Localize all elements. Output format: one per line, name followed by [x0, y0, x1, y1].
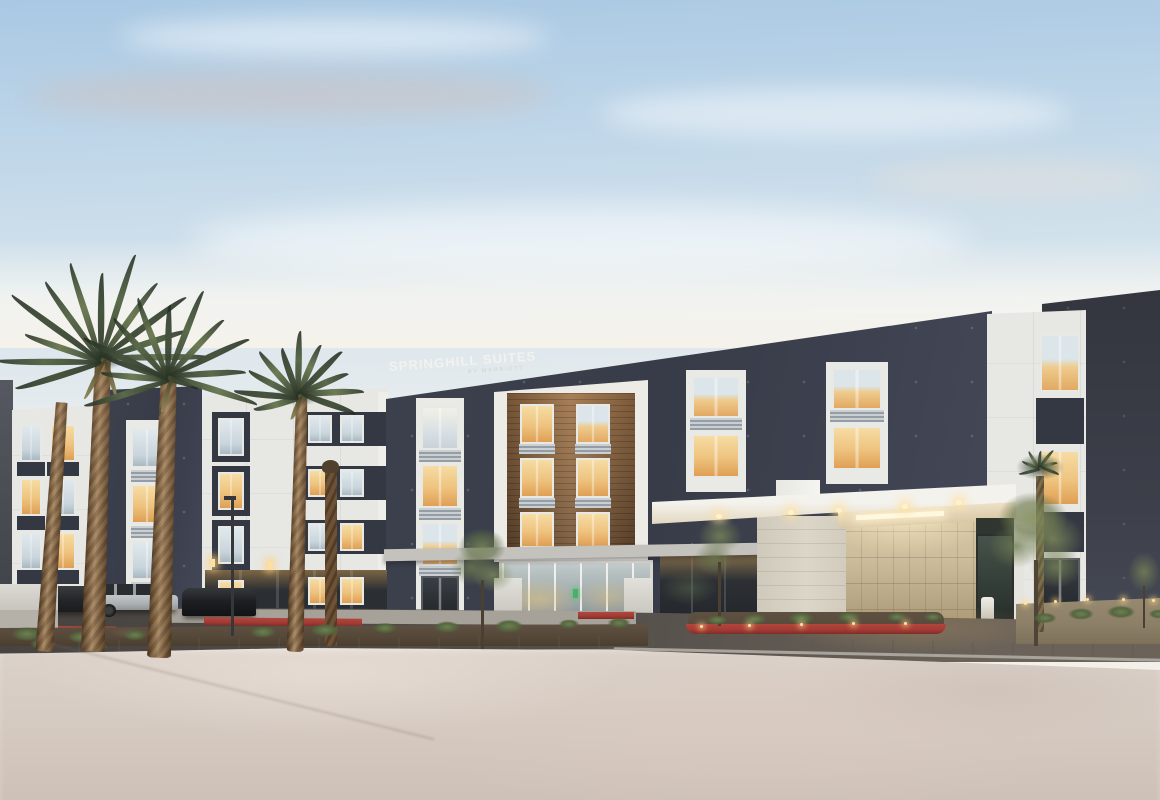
window: [340, 415, 364, 443]
window: [340, 577, 364, 605]
light-pole-head: [224, 496, 236, 500]
window: [520, 458, 554, 498]
cloud: [600, 88, 1070, 138]
parked-car: [182, 588, 256, 616]
bare-palm-top: [322, 460, 339, 473]
hotel-exterior-photo: SPRINGHILL SUITES BY MARRIOTT: [0, 0, 1160, 800]
landscape-tree: [694, 518, 748, 626]
red-curb: [204, 617, 362, 626]
shrub: [887, 612, 908, 622]
shrub: [373, 623, 396, 634]
spandrel-panel: [1036, 398, 1084, 444]
shrub: [1107, 605, 1136, 618]
exit-sign: [573, 589, 578, 598]
tree-foliage: [694, 542, 734, 576]
canopy-downlight: [788, 510, 794, 515]
shrub: [495, 619, 524, 632]
ground-light: [904, 622, 907, 625]
window: [1040, 334, 1080, 392]
spandrel-panel: [690, 418, 742, 430]
canopy-downlight: [902, 504, 908, 509]
canopy-downlight: [956, 500, 962, 505]
tree-foliage: [472, 558, 514, 592]
shrub: [311, 623, 340, 636]
ground-light: [852, 622, 855, 625]
window: [576, 512, 610, 548]
spandrel-panel: [575, 444, 611, 454]
window: [520, 512, 554, 548]
cloud: [120, 18, 550, 56]
spandrel-panel: [17, 516, 45, 530]
shrub: [707, 615, 728, 625]
window: [20, 478, 42, 516]
window: [340, 523, 364, 551]
window: [308, 415, 332, 443]
window: [421, 464, 459, 508]
ground-light: [1122, 598, 1125, 601]
canopy-downlight: [836, 508, 842, 513]
shrub: [1068, 608, 1094, 620]
ground-light: [1054, 600, 1057, 603]
ground-light: [700, 625, 703, 628]
window: [20, 424, 42, 462]
shrub: [924, 613, 942, 621]
spandrel-panel: [519, 498, 555, 508]
ground-light: [1086, 598, 1089, 601]
shrub: [837, 612, 860, 623]
ground-light: [1152, 599, 1155, 602]
window: [832, 426, 882, 470]
tree-trunk: [1034, 560, 1038, 646]
bare-palm-trunk: [325, 468, 337, 646]
window: [218, 418, 244, 456]
shrub: [743, 614, 766, 625]
window: [576, 458, 610, 498]
ground-light: [1024, 602, 1027, 605]
window: [692, 434, 740, 478]
window: [832, 368, 882, 410]
ground-light: [800, 623, 803, 626]
wall-sconce: [211, 559, 215, 567]
spandrel-panel: [419, 508, 461, 520]
light-pole: [231, 500, 234, 636]
window: [576, 404, 610, 444]
shrub: [1033, 613, 1056, 624]
wall-sconce: [268, 561, 272, 569]
canopy-pillar: [757, 516, 846, 622]
concrete-forecourt: [0, 644, 1160, 800]
shrub: [434, 621, 460, 633]
window: [421, 406, 459, 450]
cloud: [870, 158, 1160, 200]
landscape-tree: [988, 484, 1088, 648]
window: [692, 376, 740, 418]
window: [520, 404, 554, 444]
shrub: [559, 619, 580, 629]
spandrel-panel: [419, 450, 461, 462]
shrub: [250, 626, 276, 638]
window: [20, 532, 42, 570]
spandrel-panel: [519, 444, 555, 454]
spandrel-panel: [830, 410, 884, 422]
shrub: [607, 618, 630, 629]
ground-light: [748, 624, 751, 627]
spandrel-panel: [575, 498, 611, 508]
spandrel-panel: [17, 462, 45, 476]
tree-trunk: [1143, 586, 1145, 628]
window: [340, 469, 364, 497]
spandrel-panel: [17, 570, 45, 584]
cloud: [30, 72, 550, 118]
